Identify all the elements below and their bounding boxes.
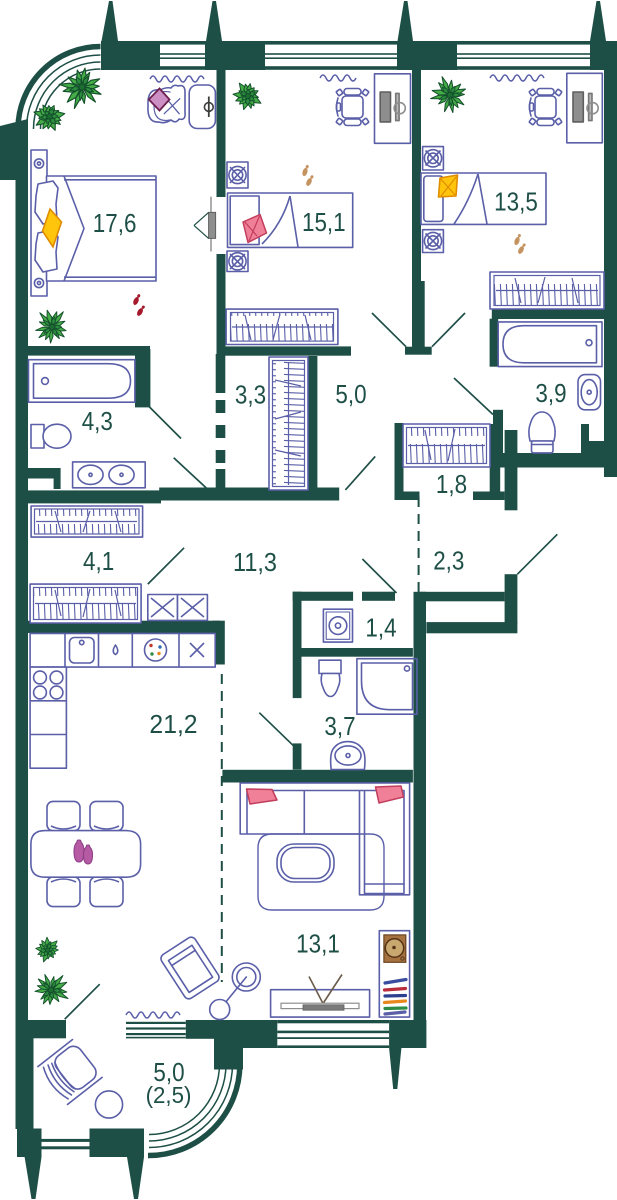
svg-text:21,2: 21,2 (149, 711, 197, 739)
svg-text:1,4: 1,4 (365, 614, 396, 643)
svg-text:17,6: 17,6 (93, 210, 137, 239)
svg-text:(2,5): (2,5) (146, 1081, 192, 1108)
svg-text:1,8: 1,8 (436, 471, 467, 500)
svg-text:2,3: 2,3 (433, 547, 464, 576)
svg-text:5,0: 5,0 (335, 381, 366, 410)
svg-text:4,1: 4,1 (83, 548, 114, 577)
svg-text:3,7: 3,7 (324, 713, 355, 742)
svg-text:4,3: 4,3 (82, 408, 113, 437)
svg-text:3,3: 3,3 (235, 381, 266, 410)
svg-text:15,1: 15,1 (302, 209, 346, 238)
svg-text:3,9: 3,9 (535, 380, 566, 409)
svg-text:13,5: 13,5 (494, 188, 538, 217)
svg-text:11,3: 11,3 (233, 549, 277, 577)
svg-text:13,1: 13,1 (296, 930, 340, 959)
